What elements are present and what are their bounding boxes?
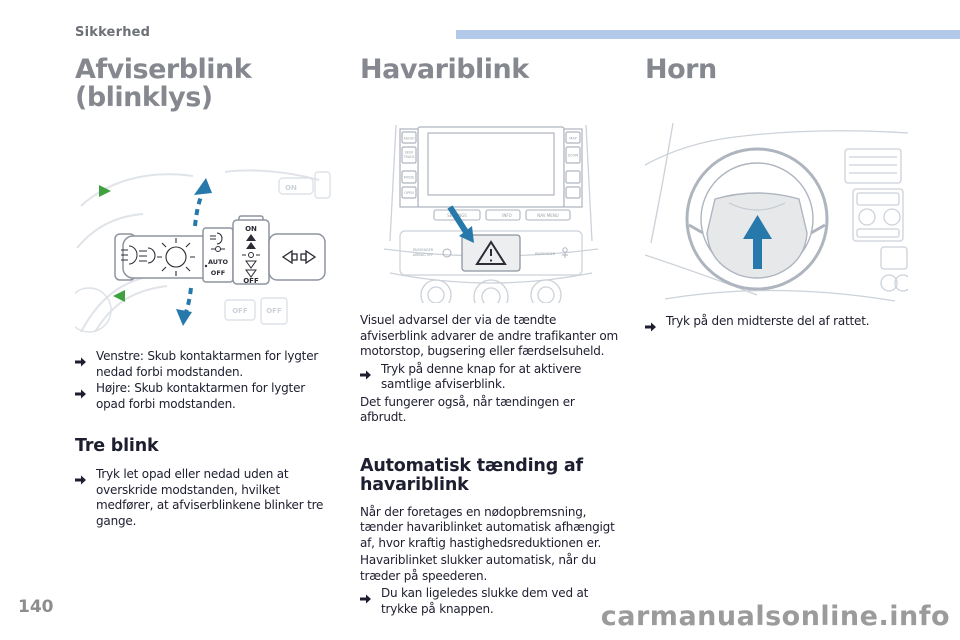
hazard-intro-text: Visuel advarsel der via de tændte afvise… [360, 313, 622, 360]
column-hazard: Havariblink [360, 56, 622, 617]
accent-bar [456, 30, 960, 39]
page-title-horn: Horn [645, 56, 908, 84]
console-map-label: MAP [569, 137, 576, 141]
ghost-on-label: ON [285, 184, 297, 192]
column-indicators: Afviserblink (blinklys) ON OFF OFF [75, 56, 333, 529]
bullet-text: Du kan ligeledes slukke dem ved at trykk… [381, 586, 622, 617]
page-title-indicators: Afviserblink (blinklys) [75, 56, 333, 112]
section-label: Sikkerhed [75, 25, 150, 40]
console-nav-menu-label: NAV MENU [537, 213, 558, 218]
console-open-label: OPEN [404, 191, 414, 195]
instruction-arrow-icon [360, 362, 373, 384]
instruction-arrow-icon [75, 349, 88, 371]
hazard-para2-text: Havariblinket slukker automatisk, når du… [360, 553, 622, 584]
instruction-arrow-icon [75, 467, 88, 489]
bullet-text: Højre: Skub kontaktarmen for lygter opad… [96, 381, 333, 412]
console-zoom-label: ZOOM [568, 154, 579, 158]
console-seek-label: SEEK [405, 151, 414, 155]
instruction-bullet: Tryk på den midterste del af rattet. [645, 314, 908, 336]
stalk-off-label: OFF [211, 269, 225, 277]
figure-steering-wheel [645, 123, 908, 303]
console-info-label: INFO [502, 213, 512, 218]
instruction-bullet: Tryk let opad eller nedad uden at oversk… [75, 467, 333, 529]
bullet-text: Venstre: Skub kontaktarmen for lygter ne… [96, 349, 333, 380]
page-title-hazard: Havariblink [360, 56, 622, 84]
bullet-text: Tryk på denne knap for at aktivere samtl… [381, 362, 622, 393]
page-number: 140 [18, 597, 54, 617]
figure-hazard-console: AUDIO SEEK TRACK MODE OPEN MAP ZOOM SETT… [360, 123, 622, 303]
stalk-off2-label: OFF [243, 277, 259, 285]
passenger-airbag-label2: AIRBAG OFF [413, 253, 434, 257]
bullet-text: Tryk på den midterste del af rattet. [666, 314, 869, 330]
console-mode-label: MODE [404, 176, 414, 180]
bullet-text: Tryk let opad eller nedad uden at oversk… [96, 467, 333, 529]
stalk-auto-label: AUTO [208, 258, 229, 266]
subheading-auto-hazard: Automatisk tænding af havariblink [360, 457, 622, 495]
console-audio-label: AUDIO [403, 137, 414, 141]
instruction-arrow-icon [75, 381, 88, 403]
ghost-off-label-a: OFF [232, 307, 248, 315]
instruction-arrow-icon [645, 314, 658, 336]
instruction-arrow-icon [360, 586, 373, 608]
watermark: carmanualsonline.info [601, 601, 950, 632]
manual-page: Sikkerhed Afviserblink (blinklys) ON OFF [0, 0, 960, 640]
subheading-tre-blink: Tre blink [75, 437, 333, 456]
passenger-airbag-label: PASSENGER [413, 248, 434, 252]
console-track-label: TRACK [402, 155, 415, 159]
instruction-bullet: Tryk på denne knap for at aktivere samtl… [360, 362, 622, 393]
instruction-bullet: Højre: Skub kontaktarmen for lygter opad… [75, 381, 333, 412]
instruction-bullet: Venstre: Skub kontaktarmen for lygter ne… [75, 349, 333, 380]
figure-indicator-stalk: ON OFF OFF [75, 162, 333, 334]
instruction-bullet: Du kan ligeledes slukke dem ved at trykk… [360, 586, 622, 617]
ghost-off-label-b: OFF [266, 307, 282, 315]
hazard-note-text: Det fungerer også, når tændingen er afbr… [360, 395, 622, 426]
passenger-label: PASSENGER [535, 252, 556, 256]
hazard-para1-text: Når der foretages en nødopbremsning, tæn… [360, 505, 622, 552]
stalk-on-label: ON [245, 225, 257, 233]
column-horn: Horn [645, 56, 908, 336]
